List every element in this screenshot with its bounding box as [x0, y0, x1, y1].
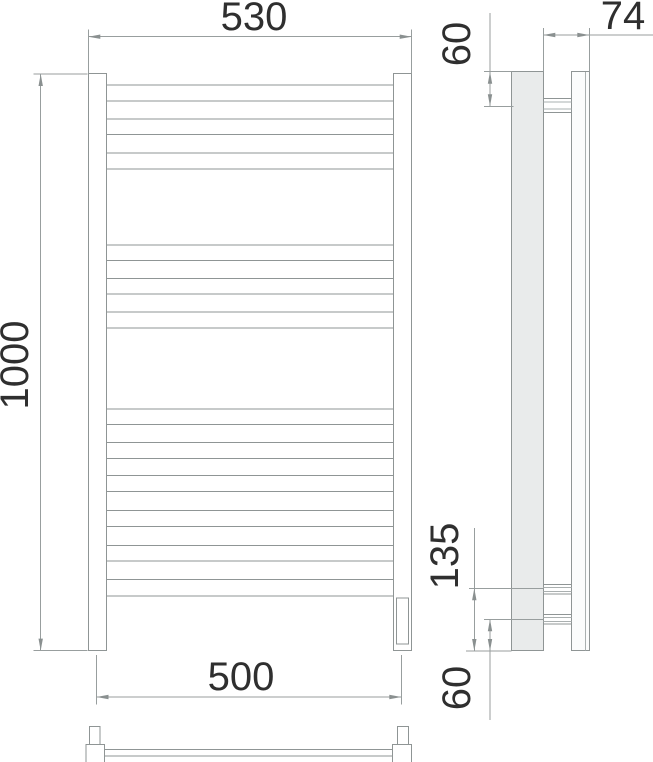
- arrowhead: [97, 695, 109, 699]
- collector-profile: [512, 72, 544, 651]
- heating-element: [397, 598, 409, 644]
- bracket-body: [543, 585, 571, 595]
- dim-label-60-top: 60: [435, 22, 479, 67]
- dim-label-500: 500: [208, 655, 275, 699]
- dim-label-74: 74: [601, 0, 646, 38]
- arrowhead: [488, 94, 492, 106]
- dim-label-1000: 1000: [0, 321, 37, 410]
- right-stub: [397, 726, 408, 744]
- technical-drawing: 530 1000 500 74 60: [0, 0, 653, 762]
- dim-label-60-bottom: 60: [435, 666, 479, 711]
- arrowhead: [488, 639, 492, 651]
- left-collector: [88, 74, 106, 651]
- bracket-body: [543, 98, 571, 112]
- dim-label-135: 135: [423, 523, 467, 590]
- right-end-cap: [393, 745, 412, 762]
- top-bracket: [543, 98, 571, 112]
- arrowhead: [400, 35, 412, 39]
- lower-bracket: [543, 585, 571, 595]
- dimension-overall-width: 530: [88, 0, 411, 73]
- arrowhead: [39, 639, 43, 651]
- arrowhead: [577, 33, 589, 37]
- side-view: [512, 72, 590, 651]
- dimension-overall-height: 1000: [0, 74, 88, 651]
- arrowhead: [88, 35, 100, 39]
- bottom-bracket: [543, 615, 571, 625]
- dimension-depth: 74: [543, 0, 653, 72]
- arrowhead: [472, 639, 476, 651]
- arrowhead: [389, 695, 401, 699]
- dim-label-530: 530: [221, 0, 288, 39]
- bracket-body: [543, 615, 571, 625]
- right-collector: [393, 74, 411, 651]
- dimension-mount-width: 500: [97, 655, 402, 705]
- rail-rungs: [106, 85, 393, 596]
- arrowhead: [488, 72, 492, 84]
- arrowhead: [39, 74, 43, 86]
- arrowhead: [543, 33, 555, 37]
- front-view: [88, 74, 411, 651]
- wall-channel: [572, 72, 590, 651]
- left-end-cap: [86, 745, 104, 762]
- arrowhead: [488, 619, 492, 631]
- left-stub: [89, 726, 100, 744]
- dimension-top-offset: 60: [435, 13, 514, 106]
- bottom-view: [86, 726, 412, 762]
- arrowhead: [472, 588, 476, 600]
